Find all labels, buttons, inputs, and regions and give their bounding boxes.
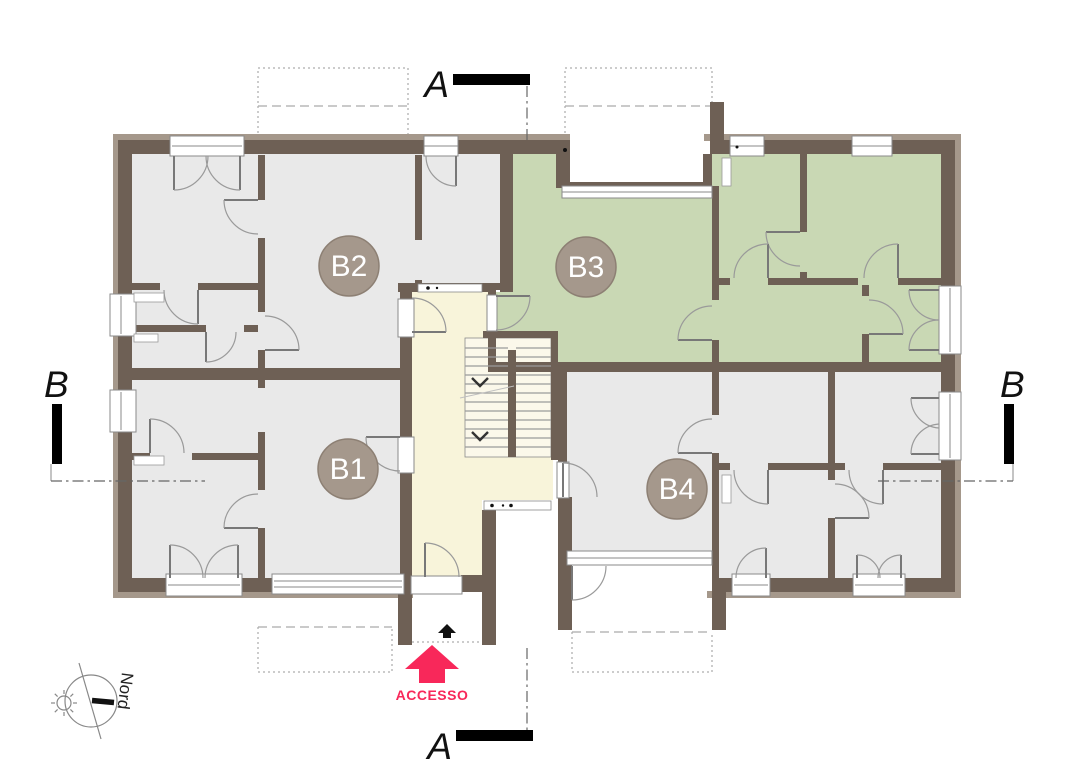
balcony-outline-bottom-right [572,632,712,672]
floor-plan-drawing: B2 B3 B1 B4 A A B B [0,0,1076,780]
section-letter: B [44,364,69,405]
unit-b4-area [567,372,941,578]
balcony-outline-top-left [258,68,408,138]
balcony-outline-bottom-left [258,627,392,672]
unit-badge-b3: B3 [556,237,616,297]
unit-badge-label: B3 [568,251,605,284]
sun-icon [51,690,77,716]
entry-direction-icon [438,624,456,638]
section-letter: A [425,726,452,767]
section-letter: A [422,64,449,105]
section-letter: B [1000,364,1025,405]
access-arrow-icon [405,645,459,683]
north-compass: Nord [51,663,137,739]
unit-badge-b1: B1 [318,439,378,499]
compass-needle [92,701,114,703]
section-bar [453,74,530,85]
unit-badge-label: B4 [659,473,696,506]
section-bar [52,404,62,464]
unit-badge-label: B2 [331,250,368,283]
unit-badge-b2: B2 [319,236,379,296]
floor-plan-page: B2 B3 B1 B4 A A B B [0,0,1076,780]
unit-badge-b4: B4 [647,459,707,519]
section-bar [1004,404,1014,464]
section-marker-a-top: A [422,64,530,140]
access-label: ACCESSO [396,687,469,703]
unit-badge-label: B1 [330,453,367,486]
balcony-outline-top-right [565,68,712,138]
north-label: Nord [114,672,137,711]
section-bar [456,730,533,741]
